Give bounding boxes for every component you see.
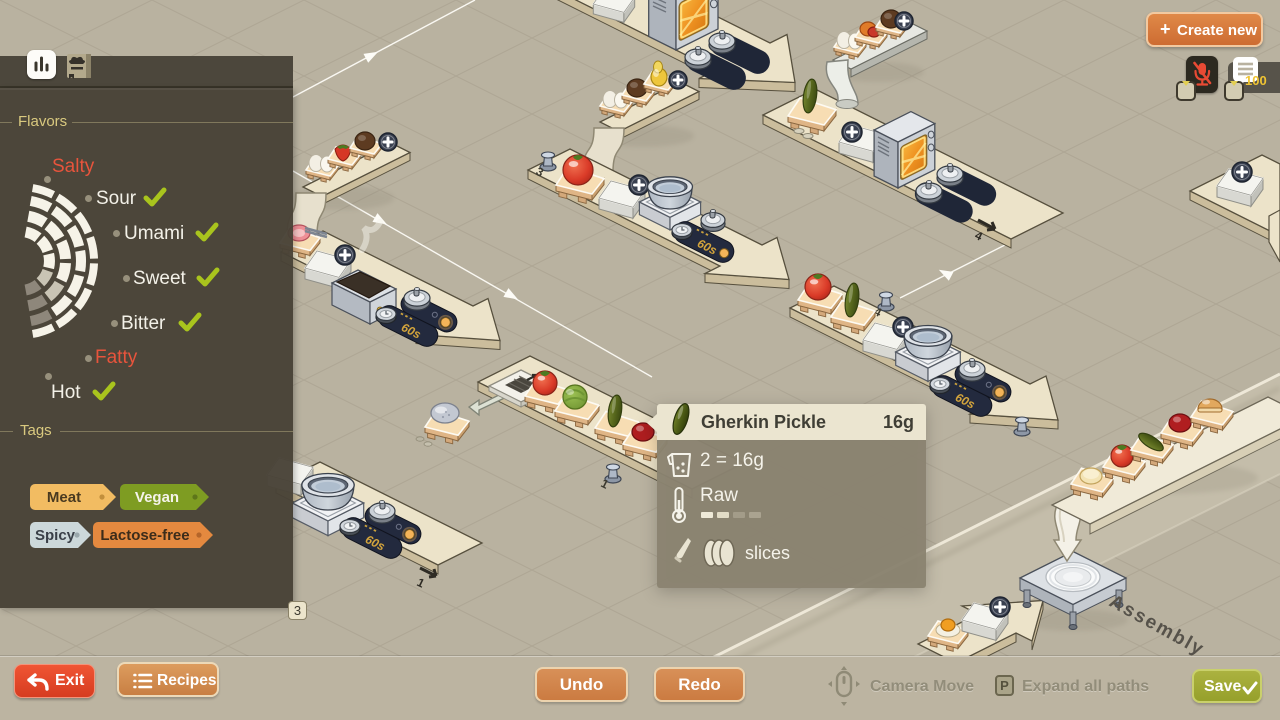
svg-text:Vegan: Vegan	[135, 489, 179, 506]
svg-text:Spicy: Spicy	[35, 527, 76, 544]
svg-text:Meat: Meat	[47, 489, 81, 506]
svg-text:Lactose-free: Lactose-free	[100, 527, 189, 544]
